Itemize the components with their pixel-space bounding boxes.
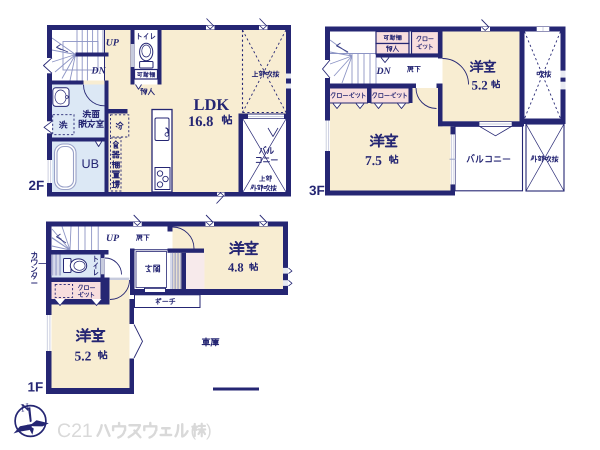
svg-text:1F: 1F [28,380,44,395]
svg-text:5.2: 5.2 [472,78,488,93]
svg-text:N: N [20,402,30,415]
svg-text:UP: UP [106,233,120,244]
svg-text:C21: C21 [57,420,93,442]
svg-text:): ) [206,421,212,440]
svg-text:UP: UP [106,38,120,49]
svg-text:DN: DN [91,66,107,77]
svg-text:4.8: 4.8 [228,261,244,275]
svg-text:LDK: LDK [194,95,230,114]
svg-text:7.5: 7.5 [365,153,382,168]
svg-text:5.2: 5.2 [75,349,92,364]
svg-text:16.8: 16.8 [188,114,213,130]
svg-text:3F: 3F [309,183,325,198]
svg-text:UB: UB [82,157,100,171]
svg-text:2F: 2F [29,178,45,193]
svg-text:DN: DN [376,66,392,77]
